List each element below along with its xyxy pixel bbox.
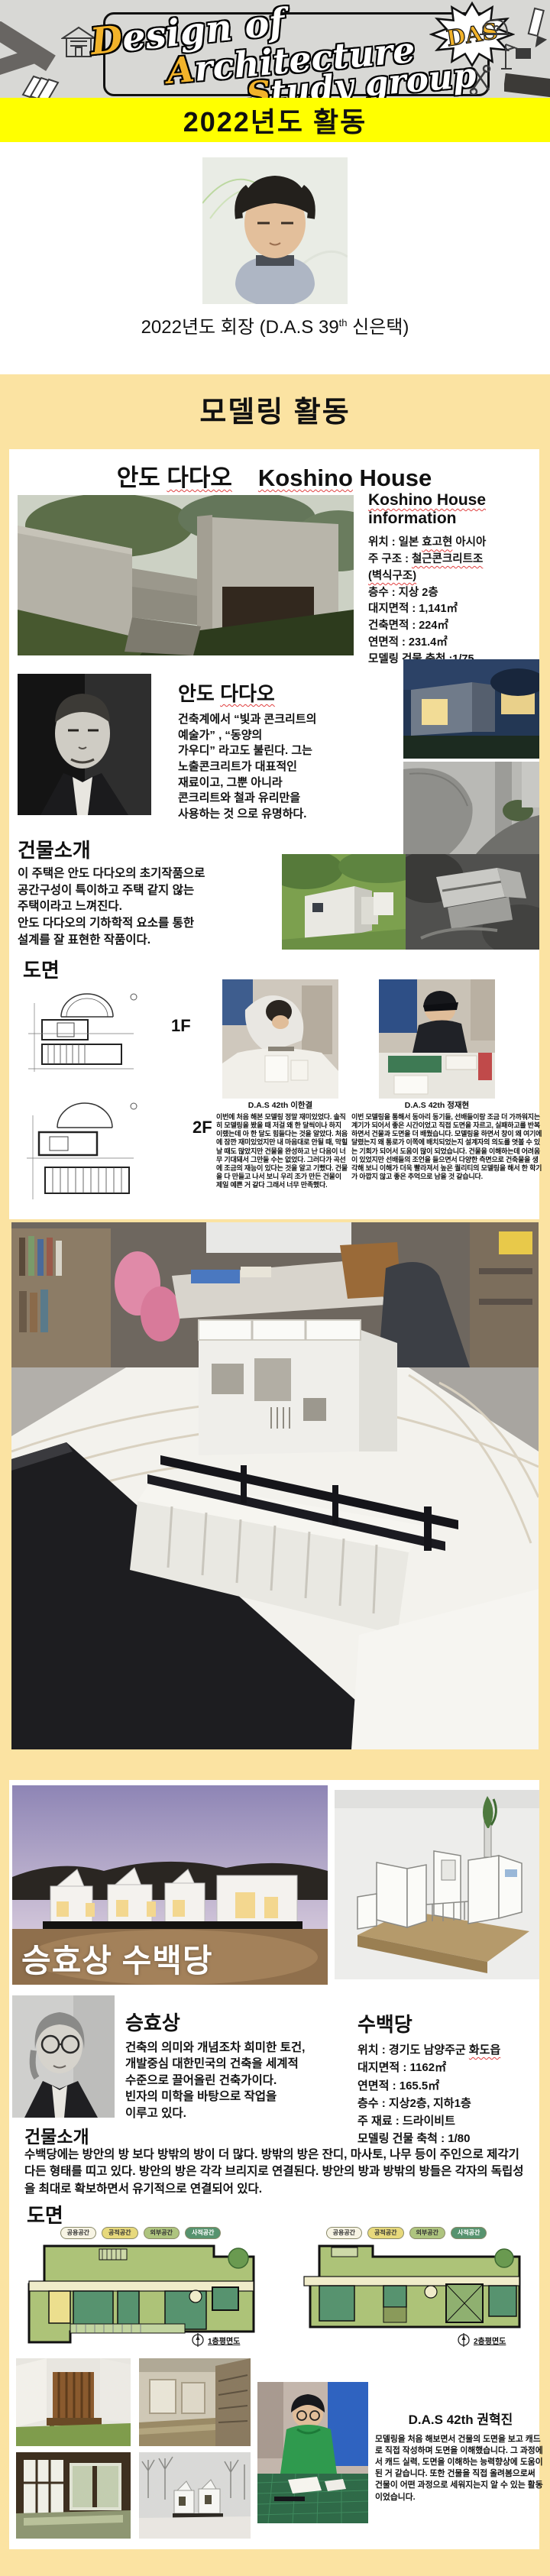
logo-initial: S bbox=[244, 73, 272, 98]
subaek-winter-photo bbox=[139, 2452, 251, 2539]
ando-work-night-photo bbox=[403, 659, 539, 759]
koshino-render-photo bbox=[282, 854, 406, 950]
ando-work-wall-photo bbox=[403, 762, 539, 854]
info-line: 주 구조 : 철근콘크리트조 bbox=[368, 552, 535, 568]
info-line: 대지면적 : 1,141㎡ bbox=[368, 601, 535, 618]
subaek-twilight-photo: 승효상 수백당 bbox=[12, 1785, 328, 1985]
info-line: 연면적 : 165.5㎡ bbox=[357, 2077, 545, 2095]
student1-photo bbox=[222, 979, 338, 1099]
student1-caption: D.A.S 42th 이한결 bbox=[222, 1099, 338, 1111]
legend-item: 사적공간 bbox=[185, 2227, 221, 2239]
title-en-wavy: Koshino bbox=[258, 464, 353, 491]
modeling-section-title: 모델링 활동 bbox=[0, 388, 550, 430]
koshino-intro-body: 이 주택은 안도 다다오의 초기작품으로 공간구성이 특이하고 주택 같지 않는… bbox=[18, 866, 254, 948]
subaek-name-heading: 수백당 bbox=[357, 2009, 412, 2037]
subaek-3d-render bbox=[335, 1790, 539, 1979]
koshino-card: 안도 다다오Koshino House bbox=[9, 449, 539, 1219]
seung-bio: 건축의 의미와 개념조차 희미한 토건, 개발중심 대한민국의 건축을 세계적 … bbox=[125, 2040, 351, 2121]
logo-initial: A bbox=[165, 48, 196, 92]
ando-bio: 건축계에서 “빛과 콘크리트의 예술가” , “동양의 가우디” 라고도 불린다… bbox=[178, 712, 369, 823]
subaek-overlay-title: 승효상 수백당 bbox=[21, 1935, 213, 1982]
subaek-interior2-photo bbox=[16, 2452, 131, 2539]
legend-item: 공용공간 bbox=[326, 2227, 362, 2239]
caption-text: 신은택) bbox=[348, 317, 409, 338]
seung-portrait-photo bbox=[12, 1995, 115, 2118]
legend-item: 외부공간 bbox=[144, 2227, 180, 2239]
student3-photo bbox=[257, 2382, 368, 2523]
floor2-label: 2F bbox=[192, 1118, 212, 1138]
subaek-intro-body: 수백당에는 방안의 방 보다 방밖의 방이 더 많다. 방밖의 방은 잔디, 마… bbox=[24, 2147, 527, 2198]
title-kr-wavy: 다다오 bbox=[167, 464, 232, 491]
floorplan-2-block: 공용공간공적공간외부공간사적공간 bbox=[289, 2225, 529, 2338]
pencil-doodle-icon bbox=[526, 6, 548, 49]
plan1-caption: 1층평면도 bbox=[191, 2333, 240, 2347]
legend-item: 공용공간 bbox=[60, 2227, 96, 2239]
legend-item: 공적공간 bbox=[102, 2227, 137, 2239]
subaek-terrace-photo bbox=[16, 2358, 131, 2446]
legend-item: 외부공간 bbox=[409, 2227, 445, 2239]
caption-sup: th bbox=[339, 317, 348, 328]
model-photo bbox=[11, 1222, 539, 1749]
subaek-interior1-photo bbox=[139, 2358, 251, 2446]
title-en: House bbox=[353, 464, 432, 491]
subaek-card: 승효상 수백당 bbox=[9, 1780, 539, 2549]
student2-review: 이번 모델링을 통해서 동아리 동기들, 선배들이랑 조금 더 가까워지는 계기… bbox=[351, 1113, 544, 1181]
compass-icon bbox=[457, 2333, 471, 2347]
info-heading-2: information bbox=[368, 510, 457, 527]
banner-2022: 2022년도 활동 bbox=[0, 98, 550, 142]
modeling-section: 모델링 활동 안도 다다오Koshino House bbox=[0, 374, 550, 2576]
wrench-doodle-icon bbox=[467, 64, 493, 95]
info-line: 위치 : 경기도 남양주군 화도읍 bbox=[357, 2041, 545, 2059]
logo-initial: D bbox=[89, 18, 125, 63]
info-heading-1: Koshino House bbox=[368, 491, 486, 509]
floor1-label: 1F bbox=[171, 1016, 191, 1036]
header: Design of Architecture Study group DAS bbox=[0, 0, 550, 98]
student1-review: 이번에 처음 해본 모델링 정말 재미있었다. 솔직히 모델링을 봤을 때 저걸… bbox=[216, 1113, 348, 1189]
student2-photo bbox=[379, 979, 495, 1099]
student2-caption: D.A.S 42th 정재현 bbox=[379, 1099, 495, 1111]
floorplan-1-drawing bbox=[23, 2241, 264, 2345]
legend-item: 사적공간 bbox=[451, 2227, 487, 2239]
ando-name-heading: 안도 다다오 bbox=[178, 678, 275, 707]
floorplan-2f-drawing bbox=[19, 1097, 149, 1208]
koshino-aerial-photo bbox=[406, 854, 539, 950]
ando-portrait-photo bbox=[18, 674, 151, 815]
koshino-drawings-title: 도면 bbox=[23, 955, 60, 983]
floorplan-1f-drawing bbox=[19, 988, 149, 1078]
floorplan-1-block: 공용공간공적공간외부공간사적공간 bbox=[23, 2225, 264, 2348]
banner-2022-title: 2022년도 활동 bbox=[183, 100, 367, 140]
poster-page: Design of Architecture Study group DAS 2… bbox=[0, 0, 550, 2576]
subaek-info: 위치 : 경기도 남양주군 화도읍 대지면적 : 1162㎡ 연면적 : 165… bbox=[357, 2041, 545, 2148]
hardhat-doodle-icon bbox=[478, 15, 512, 38]
plan1-caption-text: 1층평면도 bbox=[208, 2335, 240, 2346]
info-line: (벽식구조) bbox=[368, 568, 535, 585]
subaek-intro-title: 건물소개 bbox=[24, 2122, 89, 2148]
info-line: 층수 : 지상2층, 지하1층 bbox=[357, 2095, 545, 2112]
plan2-caption-text: 2층평면도 bbox=[474, 2335, 506, 2346]
title-kr: 안도 bbox=[117, 464, 167, 491]
tape-corner-icon bbox=[504, 73, 550, 98]
president-photo bbox=[202, 157, 348, 304]
legend-item: 공적공간 bbox=[367, 2227, 403, 2239]
student3-caption: D.A.S 42th 권혁진 bbox=[376, 2409, 545, 2428]
info-line: 층수 : 지상 2층 bbox=[368, 585, 535, 602]
info-line: 건축면적 : 224㎡ bbox=[368, 618, 535, 635]
koshino-title: 안도 다다오Koshino House bbox=[9, 458, 539, 493]
pages-doodle-icon bbox=[20, 72, 60, 98]
info-line: 대지면적 : 1162㎡ bbox=[357, 2059, 545, 2076]
student3-review: 모델링을 처음 해보면서 건물의 도면을 보고 캐드로 직접 작성하며 도면을 … bbox=[375, 2434, 543, 2503]
caption-text: 2022년도 회장 (D.A.S 39 bbox=[141, 317, 339, 338]
president-caption: 2022년도 회장 (D.A.S 39th 신은택) bbox=[0, 312, 550, 338]
info-line: 주 재료 : 드라이비트 bbox=[357, 2112, 545, 2130]
info-line: 연면적 : 231.4㎡ bbox=[368, 635, 535, 652]
floorplan-2-drawing bbox=[289, 2241, 529, 2335]
compass-icon bbox=[191, 2333, 205, 2347]
plan2-caption: 2층평면도 bbox=[457, 2333, 506, 2347]
koshino-intro-title: 건물소개 bbox=[18, 835, 91, 863]
seung-name-heading: 승효상 bbox=[125, 2008, 180, 2036]
koshino-house-photo bbox=[18, 495, 354, 655]
info-line: 위치 : 일본 효고현 아시아 bbox=[368, 535, 535, 552]
koshino-info: Koshino Houseinformation 위치 : 일본 효고현 아시아… bbox=[368, 491, 535, 668]
info-line: 모델링 건물 축척 : 1/80 bbox=[357, 2130, 545, 2147]
